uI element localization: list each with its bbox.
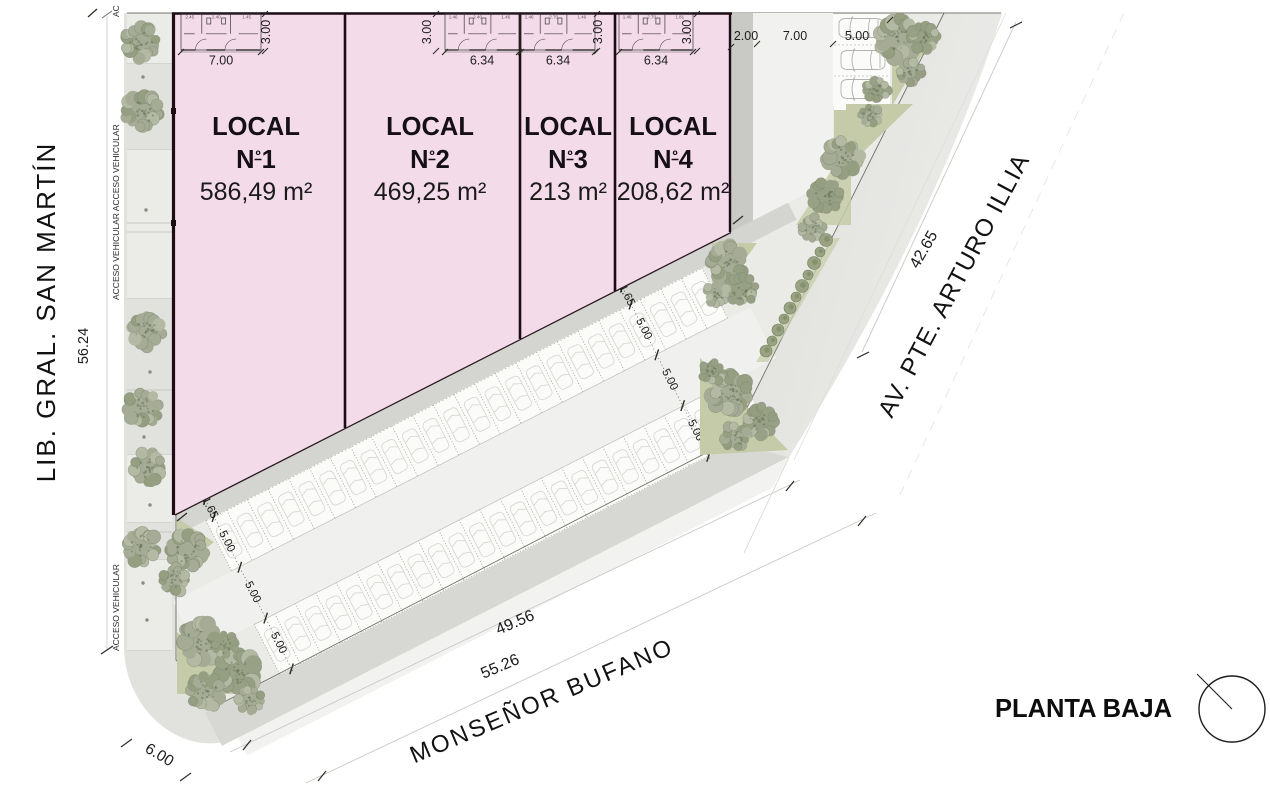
- svg-text:1.46: 1.46: [525, 15, 534, 20]
- svg-text:3.00: 3.00: [591, 20, 605, 44]
- svg-text:7.00: 7.00: [209, 54, 233, 68]
- svg-text:1.46: 1.46: [501, 15, 510, 20]
- svg-text:213 m²: 213 m²: [529, 178, 607, 206]
- svg-text:AC: AC: [111, 5, 121, 17]
- svg-text:ACCESO VEHICULAR: ACCESO VEHICULAR: [111, 564, 121, 651]
- svg-text:5.00: 5.00: [845, 29, 869, 43]
- svg-text:7.00: 7.00: [783, 29, 807, 43]
- svg-text:2.70: 2.70: [647, 15, 656, 20]
- svg-text:6.34: 6.34: [470, 54, 494, 68]
- svg-text:LOCAL: LOCAL: [212, 113, 300, 141]
- svg-text:6.34: 6.34: [546, 54, 570, 68]
- svg-text:1.81: 1.81: [675, 15, 684, 20]
- svg-text:2.00: 2.00: [734, 29, 758, 43]
- svg-text:PLANTA BAJA: PLANTA BAJA: [995, 695, 1172, 723]
- svg-text:1.45: 1.45: [242, 15, 251, 20]
- svg-text:586,49 m²: 586,49 m²: [200, 178, 313, 206]
- svg-text:LOCAL: LOCAL: [386, 113, 474, 141]
- svg-text:2.70: 2.70: [549, 15, 558, 20]
- svg-text:208,62 m²: 208,62 m²: [617, 178, 730, 206]
- svg-text:LOCAL: LOCAL: [524, 113, 612, 141]
- svg-text:3.00: 3.00: [259, 20, 273, 44]
- svg-text:1.46: 1.46: [623, 15, 632, 20]
- svg-text:3.00: 3.00: [420, 20, 434, 44]
- svg-text:1.46: 1.46: [577, 15, 586, 20]
- svg-text:LOCAL: LOCAL: [629, 113, 717, 141]
- svg-text:2.40: 2.40: [212, 15, 221, 20]
- svg-text:469,25 m²: 469,25 m²: [374, 178, 487, 206]
- svg-text:6.34: 6.34: [644, 54, 668, 68]
- svg-text:3.00: 3.00: [680, 20, 694, 44]
- svg-text:ACCESO VEHICULAR ACCESO VEHICU: ACCESO VEHICULAR ACCESO VEHICULAR: [111, 124, 121, 300]
- svg-text:1.46: 1.46: [449, 15, 458, 20]
- svg-text:LIB. GRAL. SAN MARTÍN: LIB. GRAL. SAN MARTÍN: [31, 142, 61, 483]
- svg-text:2.45: 2.45: [185, 15, 194, 20]
- svg-text:2.40: 2.40: [473, 15, 482, 20]
- svg-text:56.24: 56.24: [76, 328, 92, 364]
